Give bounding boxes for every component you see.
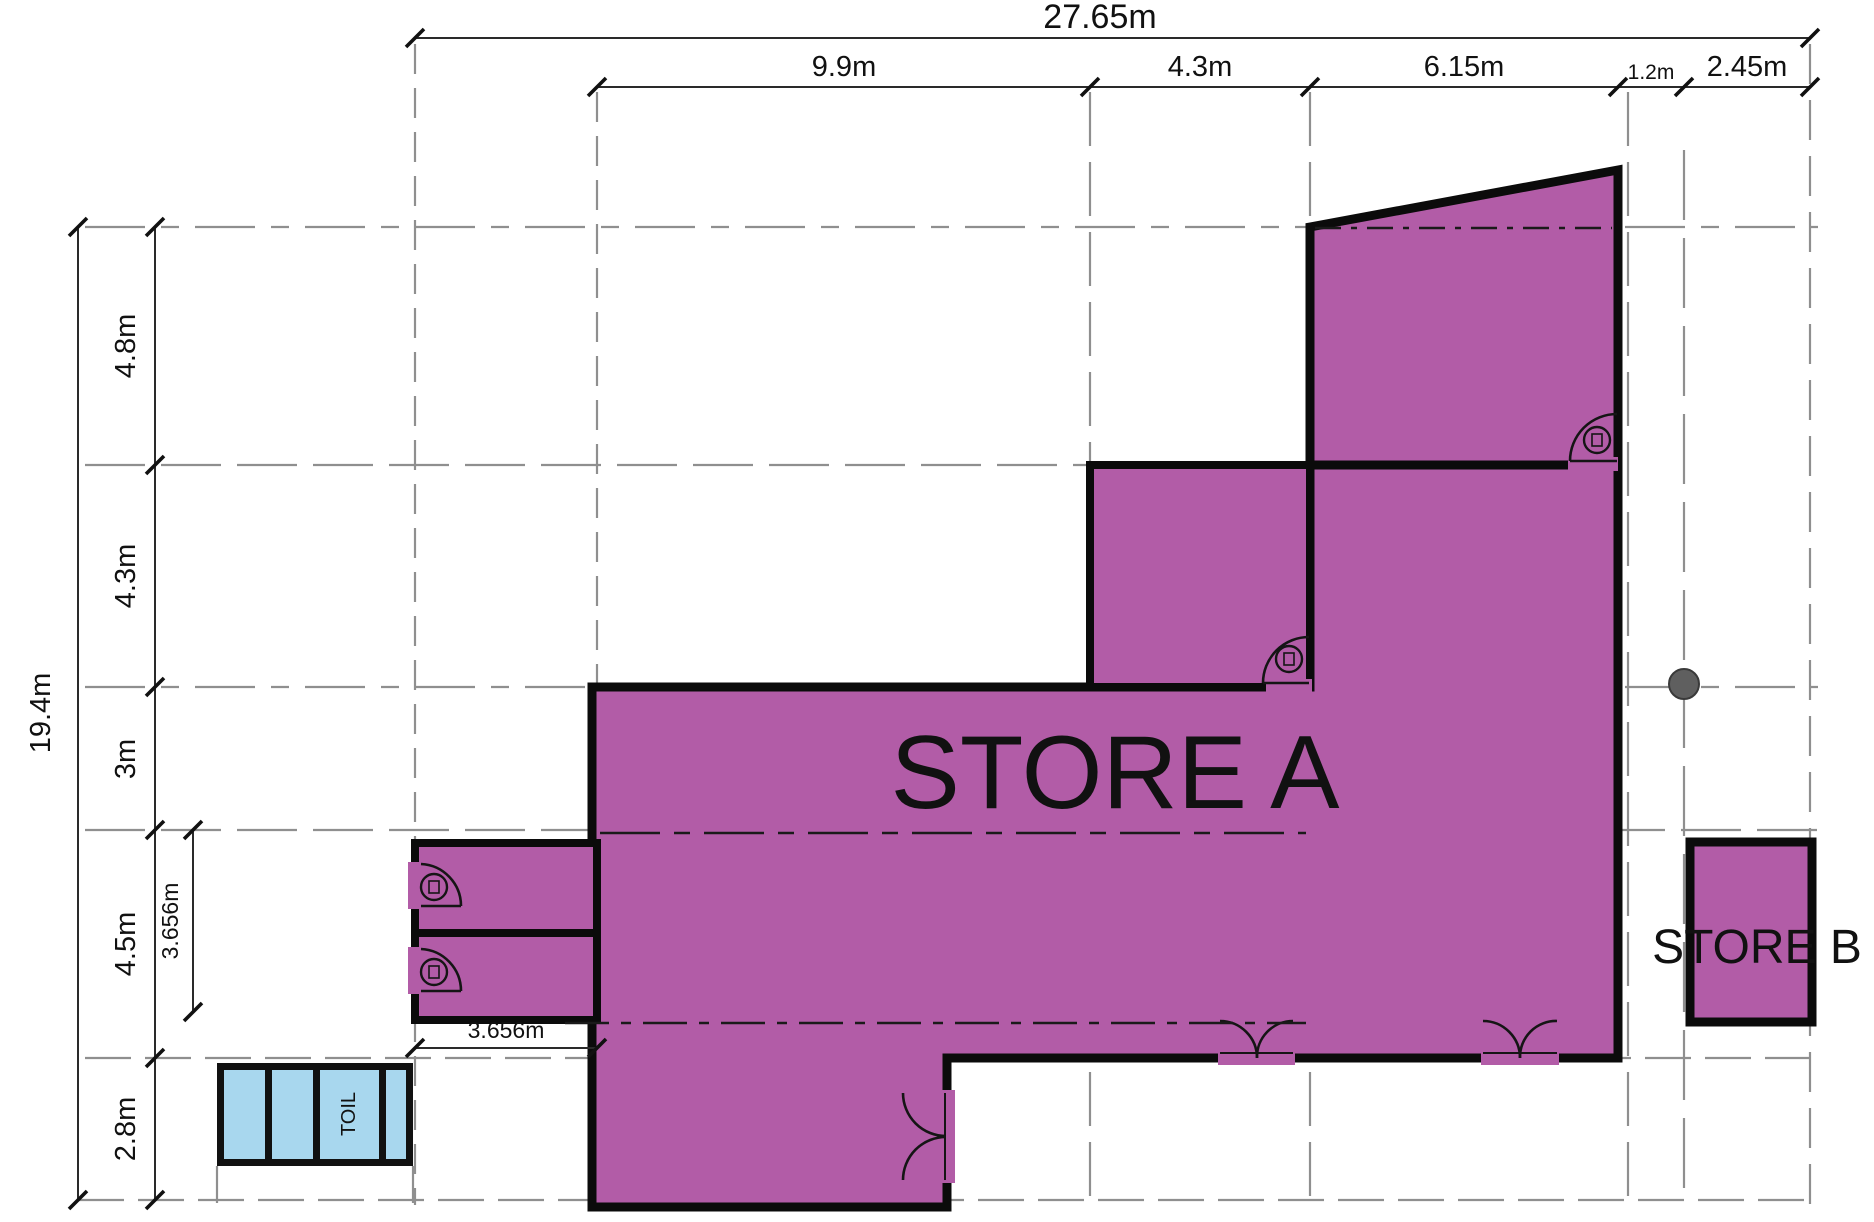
dim-top-segment-label: 6.15m: [1424, 51, 1505, 83]
dim-left-segment-label: 2.8m: [110, 1097, 142, 1161]
toilet-cubicle: [224, 1070, 265, 1159]
toilet-cubicle: [386, 1070, 406, 1159]
toilet-label: TOIL: [338, 1092, 360, 1136]
floor-plan-page: TOIL 27.65m 9.9m 4.3m 6.15m 1.2m: [0, 0, 1874, 1222]
dim-left-segment-label: 4.8m: [110, 314, 142, 378]
dim-inner-vertical-label: 3.656m: [157, 883, 183, 960]
survey-dot: [1669, 669, 1699, 699]
toilet-block: TOIL: [217, 1063, 413, 1166]
dim-top-segment-label: 1.2m: [1628, 61, 1675, 84]
store-a-slanted-bay-shape: [1310, 170, 1618, 465]
dim-left-total-label: 19.4m: [25, 673, 57, 754]
door-tag-icon: [1276, 646, 1302, 672]
store-b-label: STORE B: [1652, 921, 1862, 974]
door-tag-icon: [1584, 427, 1610, 453]
store-a-label: STORE A: [891, 715, 1341, 831]
dim-inner-horizontal-label: 3.656m: [468, 1017, 545, 1043]
dim-left-segment-label: 4.3m: [110, 544, 142, 608]
dim-top-segment-label: 9.9m: [812, 51, 876, 83]
door-tag-icon: [421, 874, 447, 900]
door-tag-icon: [421, 959, 447, 985]
building-shapes: [415, 170, 1812, 1207]
floor-plan-svg: TOIL 27.65m 9.9m 4.3m 6.15m 1.2m: [0, 0, 1874, 1222]
dim-left-segment-label: 4.5m: [110, 912, 142, 976]
dim-left-segment-label: 3m: [110, 739, 142, 779]
dim-top-segment-label: 4.3m: [1168, 51, 1232, 83]
dim-top-segment-label: 2.45m: [1707, 51, 1788, 83]
dim-top-total-label: 27.65m: [1043, 0, 1156, 36]
toilet-cubicle: [272, 1070, 313, 1159]
